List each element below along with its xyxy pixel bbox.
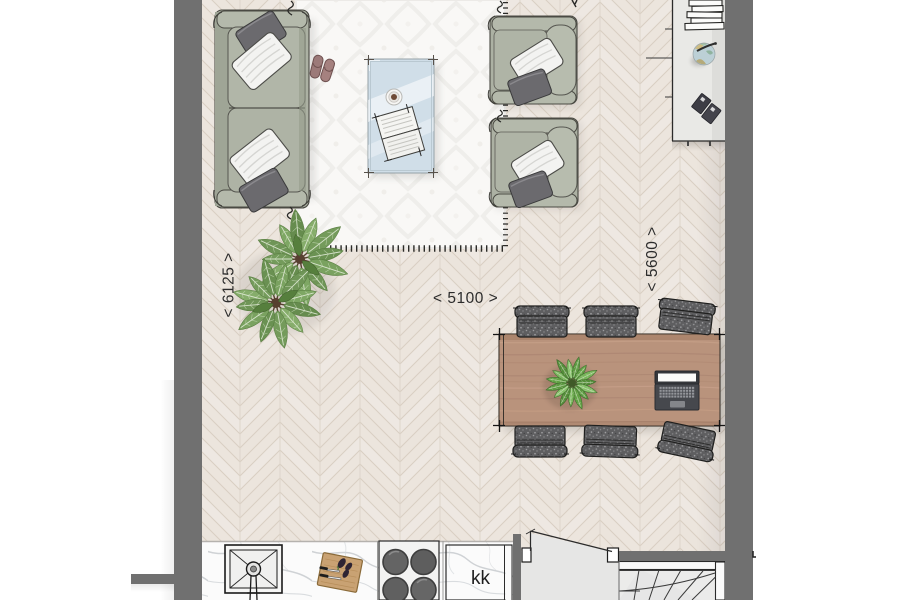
svg-text:< 5600 >: < 5600 > — [644, 226, 661, 291]
svg-text:< 5100 >: < 5100 > — [433, 290, 498, 307]
svg-text:< 6125 >: < 6125 > — [221, 252, 238, 317]
svg-text:kk: kk — [471, 568, 491, 589]
